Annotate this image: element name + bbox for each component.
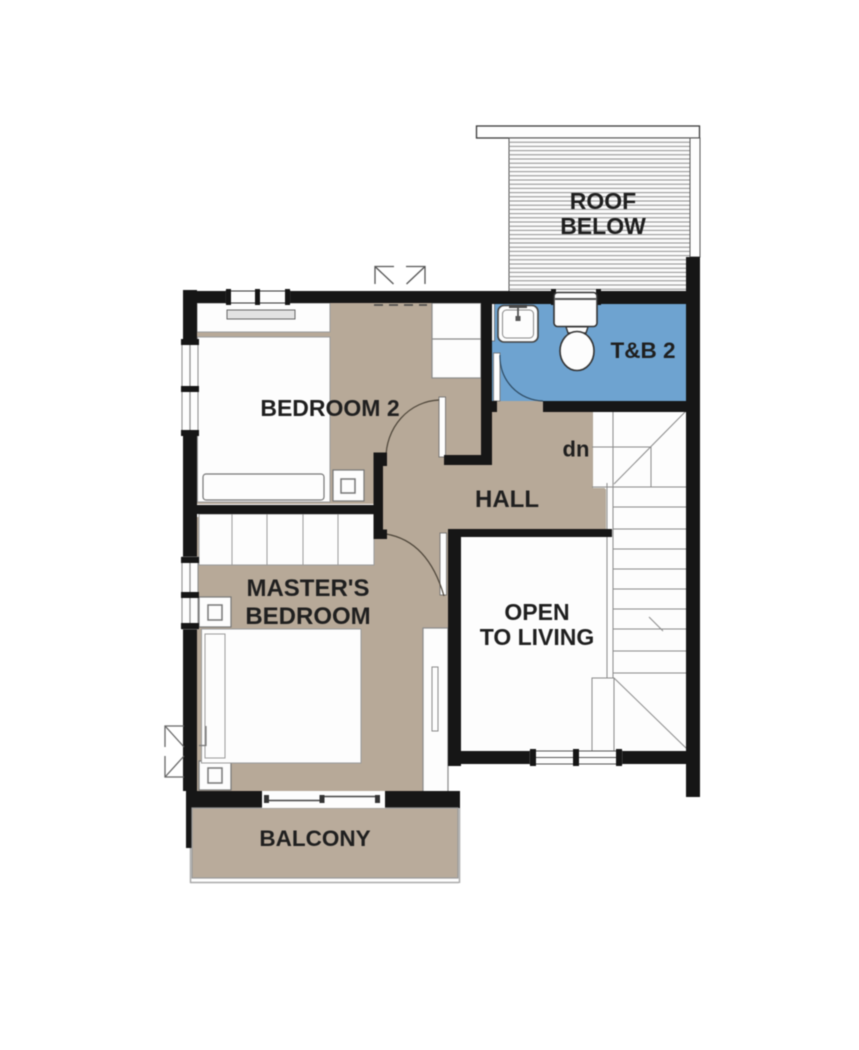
svg-text:dn: dn (563, 437, 590, 462)
svg-text:BEDROOM 2: BEDROOM 2 (260, 395, 399, 421)
svg-text:TO LIVING: TO LIVING (480, 624, 595, 650)
svg-text:ROOF: ROOF (570, 188, 636, 214)
svg-text:MASTER'S: MASTER'S (246, 575, 369, 602)
svg-text:T&B 2: T&B 2 (610, 338, 675, 363)
svg-text:BELOW: BELOW (560, 213, 646, 239)
svg-text:OPEN: OPEN (504, 599, 569, 625)
svg-text:BEDROOM: BEDROOM (245, 603, 370, 630)
svg-text:BALCONY: BALCONY (259, 826, 370, 851)
svg-text:HALL: HALL (475, 486, 539, 513)
